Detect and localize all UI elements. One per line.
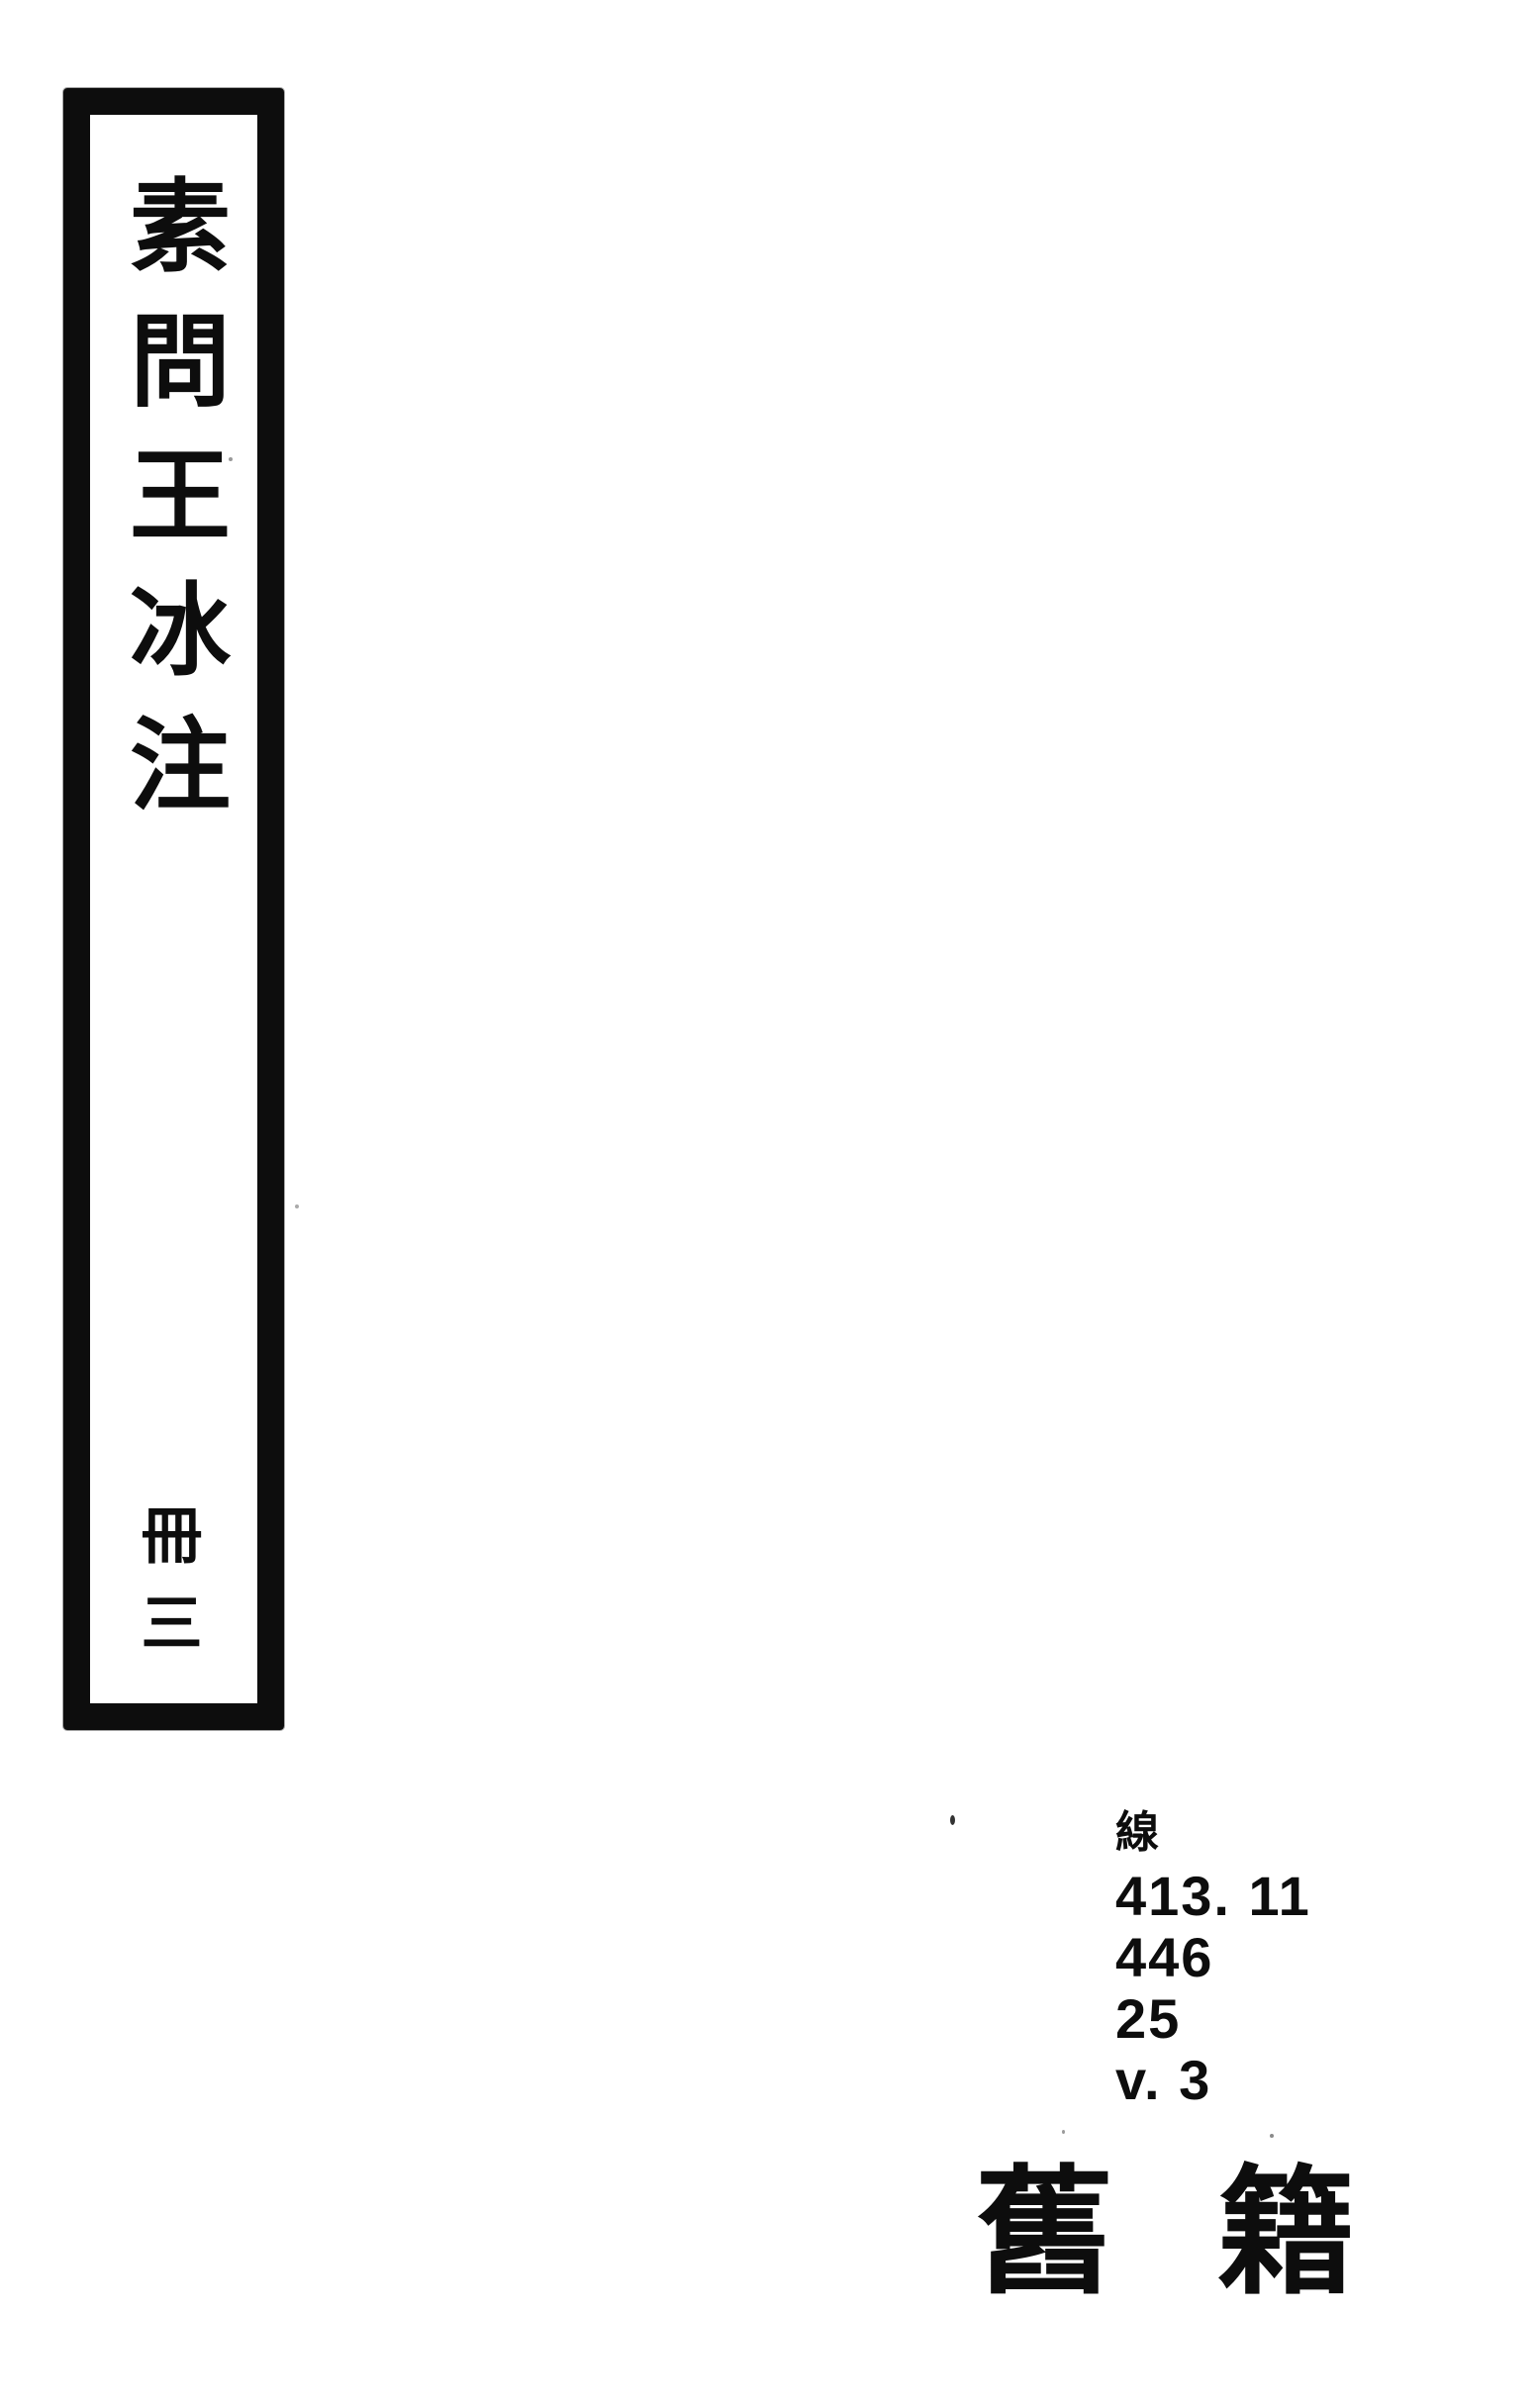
call-number-line-2: 446 [1115, 1930, 1213, 1985]
call-number-line-4: v. 3 [1115, 2053, 1211, 2108]
ink-speck [1270, 2134, 1274, 2138]
book-title-vertical: 素問王冰注 [122, 173, 223, 846]
ink-speck [950, 1815, 955, 1825]
ink-speck [1062, 2130, 1065, 2134]
volume-marker-vertical: 冊三 [136, 1503, 197, 1678]
scanned-book-cover-page: 素問王冰注 冊三 線 413. 11 446 25 v. 3 舊籍 [0, 0, 1538, 2408]
ink-speck [295, 1204, 299, 1208]
old-books-category-stamp: 舊籍 [975, 2164, 1460, 2302]
call-number-line-1: 413. 11 [1115, 1869, 1311, 1924]
title-label-box: 素問王冰注 冊三 [63, 88, 284, 1730]
call-number-line-3: 25 [1115, 1991, 1181, 2047]
ink-speck [229, 457, 233, 461]
library-call-number: 線 413. 11 446 25 v. 3 [1115, 1811, 1432, 2128]
call-number-class-char: 線 [1115, 1811, 1159, 1855]
